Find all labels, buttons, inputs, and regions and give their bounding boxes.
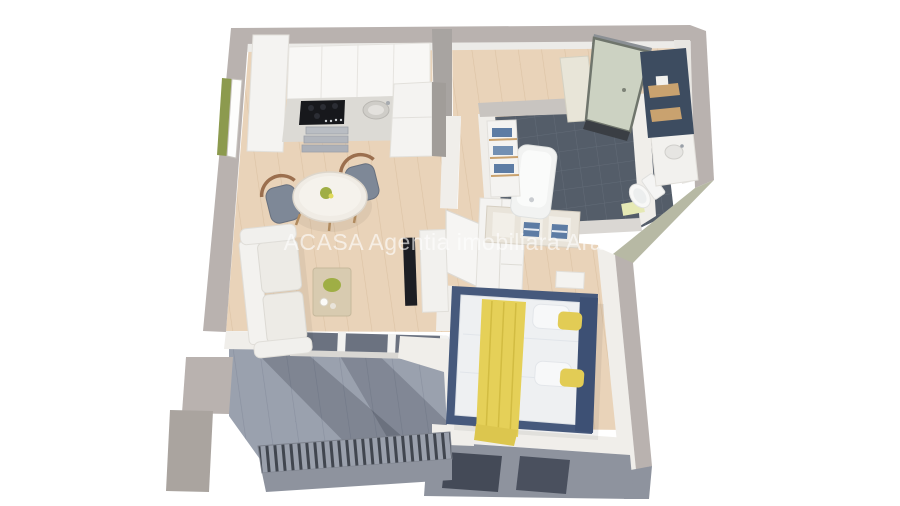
towel: [494, 164, 514, 173]
coffee-table: [313, 268, 351, 316]
coffee-table-plant: [323, 278, 341, 292]
shelf-box: [656, 76, 669, 86]
towel: [492, 128, 512, 137]
accent-pillow: [559, 368, 584, 388]
tv: [403, 238, 417, 306]
towel-shelf: [487, 120, 520, 197]
bedroom-window-shadow: [516, 456, 570, 494]
cooktop: [299, 100, 345, 125]
nightstand: [556, 271, 585, 288]
tv-area: [403, 229, 449, 312]
floor-plan-render: ACASA Agentia imobiliara Arad: [0, 0, 900, 506]
sofa: [237, 223, 314, 359]
fridge: [390, 82, 432, 157]
kitchen-sink: [363, 101, 390, 119]
towel: [493, 146, 513, 155]
tall-cabinet: [247, 35, 289, 152]
floor-plan-canvas: [0, 0, 900, 506]
balcony-west-wall: [182, 357, 233, 414]
north-wall: [231, 25, 694, 44]
fridge-side-panel: [432, 82, 446, 157]
kitchen: [247, 35, 446, 157]
tv-console: [420, 229, 449, 312]
double-bed: [446, 286, 604, 446]
balcony-southwest-wall: [166, 410, 213, 492]
metal-drawers: [302, 127, 348, 152]
accent-pillow: [557, 311, 582, 331]
